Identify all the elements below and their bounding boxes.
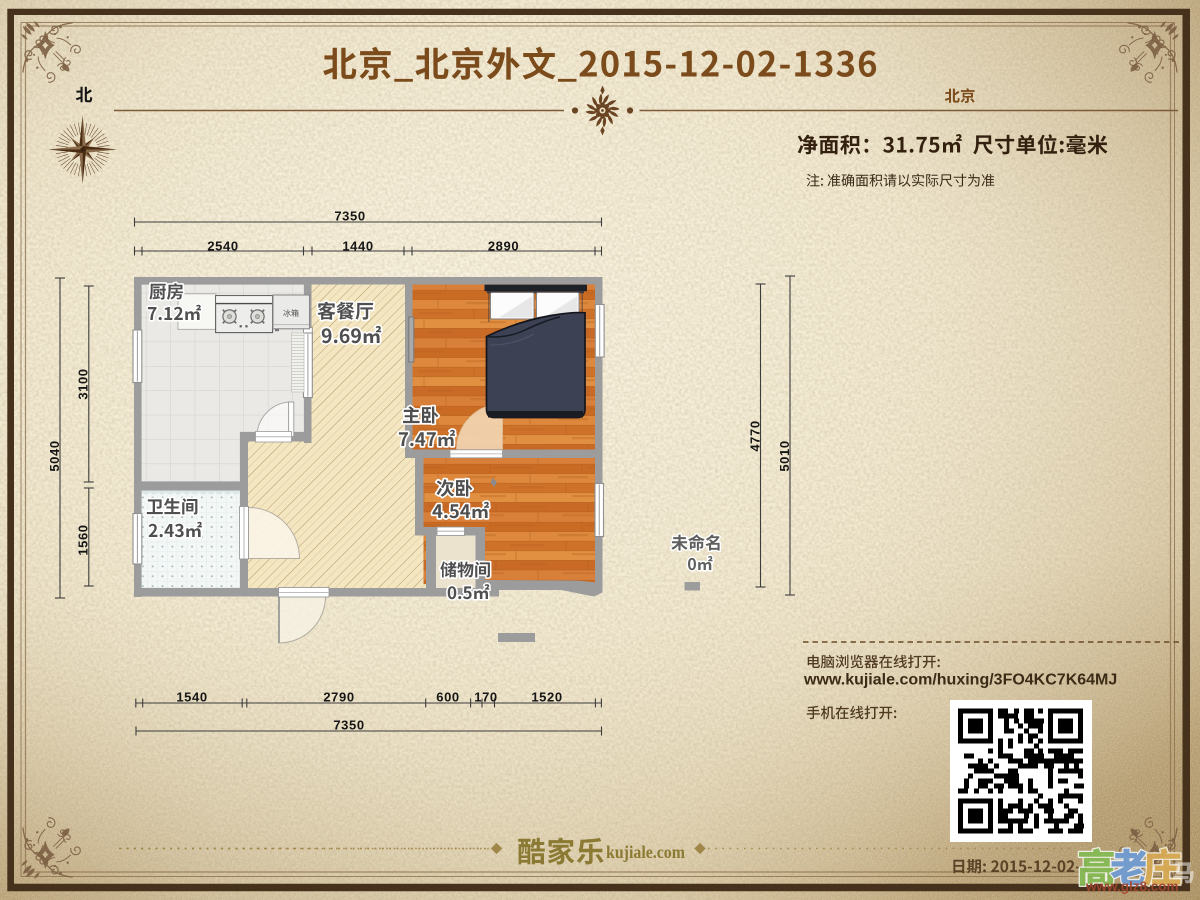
svg-text:5040: 5040 <box>47 440 62 471</box>
svg-text:www.kujiale.com/huxing/3FO4KC7: www.kujiale.com/huxing/3FO4KC7K64MJ <box>803 672 1117 689</box>
svg-text:2890: 2890 <box>488 238 519 253</box>
svg-text:5010: 5010 <box>777 440 792 471</box>
svg-text:600: 600 <box>436 689 460 704</box>
svg-text:7350: 7350 <box>334 208 365 223</box>
svg-text:2540: 2540 <box>207 238 238 253</box>
svg-text:170: 170 <box>474 689 498 704</box>
svg-text:1540: 1540 <box>176 689 207 704</box>
svg-text:1440: 1440 <box>342 238 373 253</box>
svg-text:www.glz8.com: www.glz8.com <box>1085 879 1179 894</box>
svg-text:1560: 1560 <box>76 524 91 555</box>
svg-text:4770: 4770 <box>747 420 762 451</box>
svg-text:2790: 2790 <box>323 689 354 704</box>
svg-text:3100: 3100 <box>76 368 91 399</box>
svg-text:kujiale.com: kujiale.com <box>606 842 685 862</box>
svg-text:7350: 7350 <box>333 718 364 733</box>
svg-text:1520: 1520 <box>531 689 562 704</box>
